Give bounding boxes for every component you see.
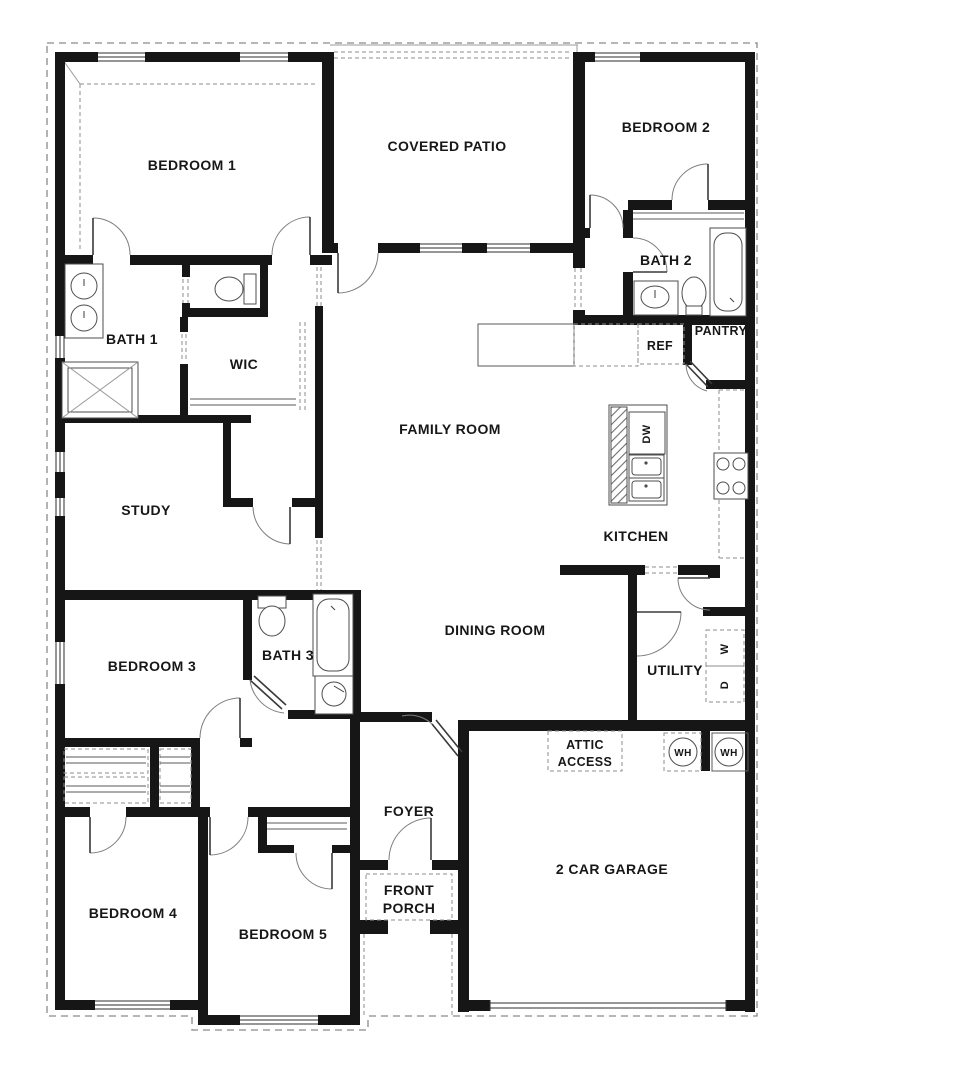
window-study-a (55, 452, 65, 472)
kitchen-island (609, 405, 667, 505)
door-bedroom3 (200, 698, 240, 738)
door-bedroom5-closet (296, 853, 332, 889)
door-patio (338, 253, 378, 293)
window-study-b (55, 498, 65, 516)
door-front-entry (389, 818, 431, 860)
kitchen-counter-top (478, 324, 638, 366)
bath3-toilet-icon (258, 596, 286, 636)
door-bedroom5 (210, 817, 248, 855)
door-study (253, 507, 290, 544)
bath2-tub-icon (710, 228, 746, 316)
room-label-pantry: PANTRY (695, 324, 748, 338)
label-dryer: D (719, 681, 731, 689)
window-bedroom1-a (98, 52, 145, 62)
room-label-bath-3: BATH 3 (262, 647, 314, 663)
floor-plan-canvas: BEDROOM 1 COVERED PATIO BEDROOM 2 BATH 2… (0, 0, 966, 1080)
room-label-kitchen: KITCHEN (603, 528, 668, 544)
window-bedroom5 (240, 1015, 318, 1025)
room-label-bedroom-4: BEDROOM 4 (89, 905, 177, 921)
room-label-dining-room: DINING ROOM (445, 622, 546, 638)
kitchen-sink-icon (629, 455, 664, 501)
garage-door (490, 1000, 726, 1011)
bath3-sink-icon (315, 676, 353, 714)
label-attic-access-2: ACCESS (558, 755, 613, 769)
room-label-foyer: FOYER (384, 803, 434, 819)
window-bedroom2 (595, 52, 640, 62)
cooktop-icon (714, 453, 748, 499)
door-bedroom1-hall (93, 218, 130, 255)
door-utility-closet (678, 578, 710, 610)
room-label-bedroom-5: BEDROOM 5 (239, 926, 327, 942)
room-label-bath-2: BATH 2 (640, 252, 692, 268)
window-family-a (420, 243, 462, 253)
room-label-bedroom-1: BEDROOM 1 (148, 157, 236, 173)
window-bedroom3 (55, 642, 65, 684)
label-ref: REF (647, 339, 673, 353)
door-bedroom4 (90, 817, 126, 853)
label-attic-access-1: ATTIC (566, 738, 604, 752)
room-label-bath-1: BATH 1 (106, 331, 158, 347)
room-label-utility: UTILITY (647, 662, 703, 678)
bath2-vanity-icon (634, 281, 678, 315)
bath1-vanity-icon (65, 264, 103, 338)
door-bedroom2-lobe (590, 195, 623, 228)
room-label-family-room: FAMILY ROOM (399, 421, 501, 437)
bath2-toilet-icon (682, 277, 706, 315)
room-label-garage: 2 CAR GARAGE (556, 861, 668, 877)
room-label-front-porch-2: PORCH (383, 900, 436, 916)
bath1-shower-icon (62, 362, 138, 418)
door-bedroom2 (672, 164, 708, 200)
bedroom1-tray-ceiling (63, 60, 318, 250)
window-family-b (487, 243, 530, 253)
window-bath1 (55, 336, 65, 358)
room-label-covered-patio: COVERED PATIO (387, 138, 506, 154)
door-bath3 (250, 676, 286, 713)
window-bedroom4 (95, 1000, 170, 1010)
room-label-front-porch-1: FRONT (384, 882, 434, 898)
label-wh-2: WH (720, 748, 737, 759)
bath1-toilet-icon (215, 274, 256, 304)
door-pantry (686, 361, 712, 391)
label-dw: DW (641, 424, 653, 443)
bath3-tub-icon (313, 594, 353, 676)
kitchen-counter (714, 390, 748, 558)
door-bedroom1-wic (272, 217, 310, 255)
window-bedroom1-b (240, 52, 288, 62)
label-washer: W (719, 643, 731, 654)
room-label-wic: WIC (230, 356, 258, 372)
room-label-study: STUDY (121, 502, 171, 518)
room-labels: BEDROOM 1 COVERED PATIO BEDROOM 2 BATH 2… (89, 119, 748, 942)
room-label-bedroom-3: BEDROOM 3 (108, 658, 196, 674)
room-label-bedroom-2: BEDROOM 2 (622, 119, 710, 135)
label-wh-1: WH (674, 748, 691, 759)
door-utility (637, 612, 681, 656)
floor-plan: BEDROOM 1 COVERED PATIO BEDROOM 2 BATH 2… (0, 0, 966, 1080)
